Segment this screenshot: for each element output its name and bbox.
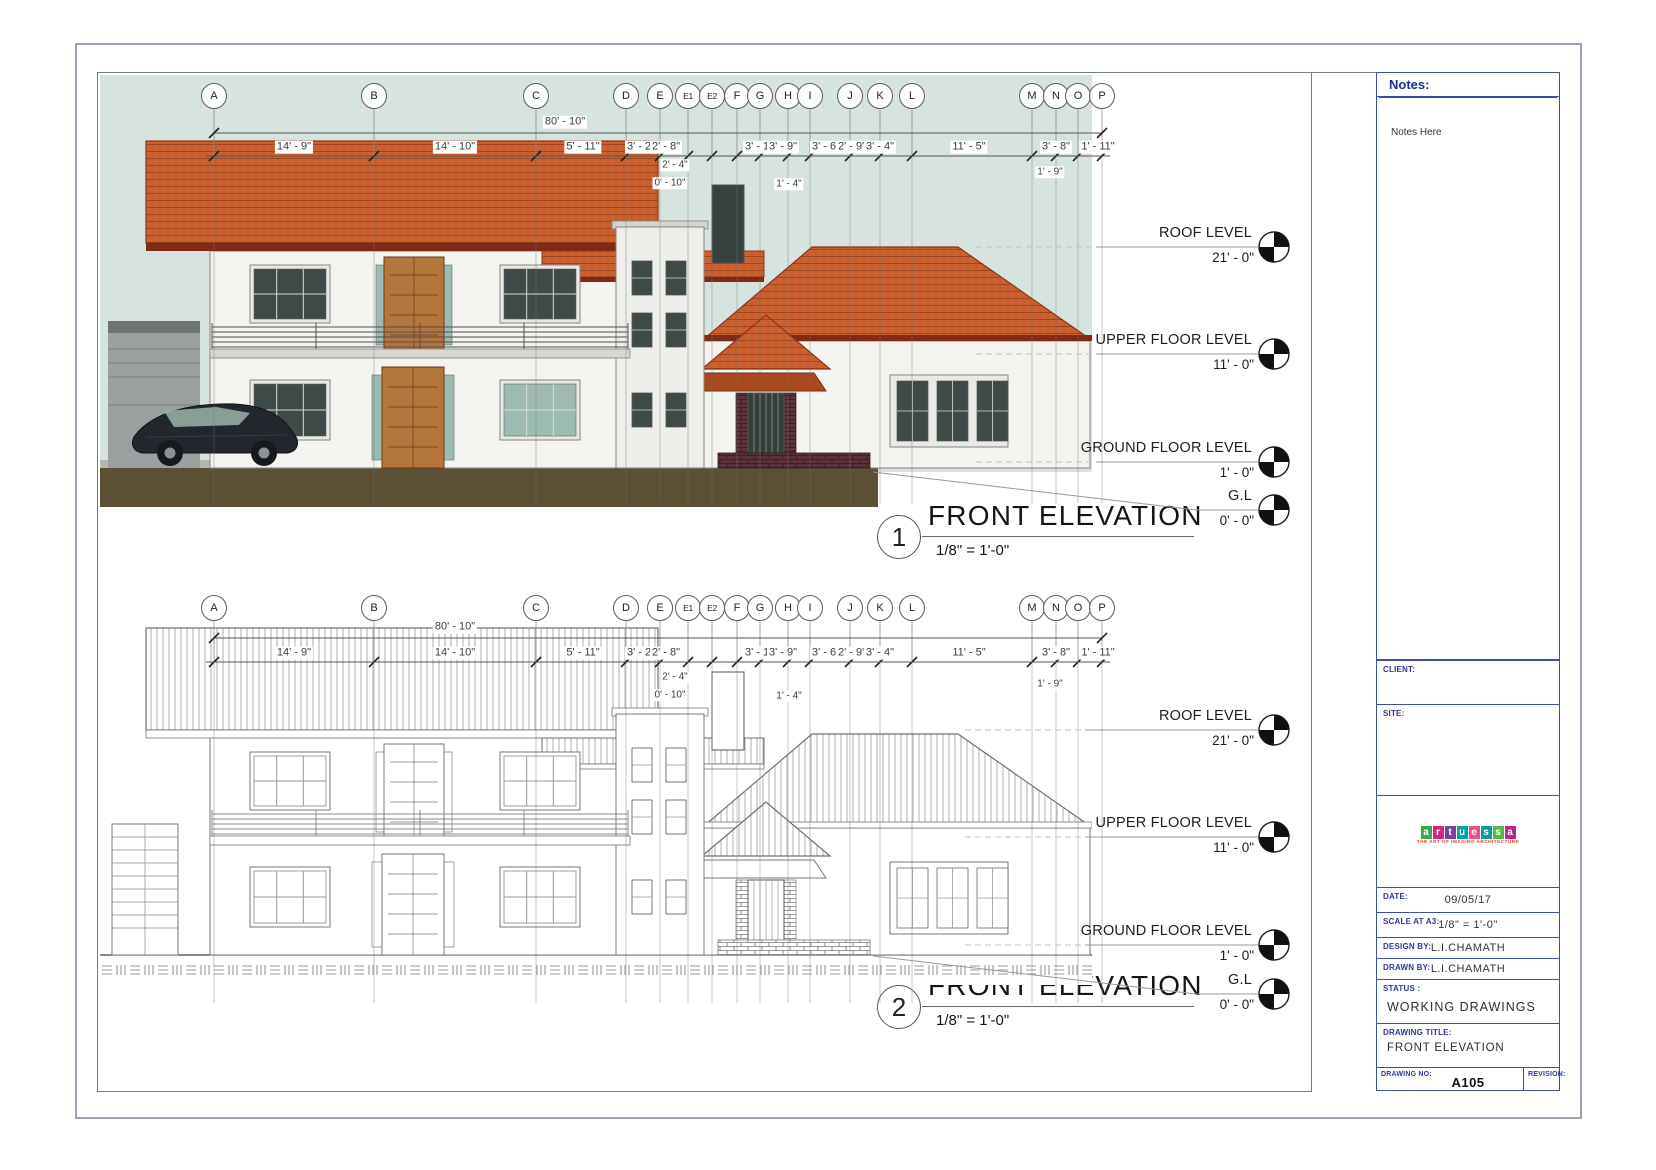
client-label: CLIENT: <box>1383 665 1415 674</box>
client-box: CLIENT: <box>1376 660 1560 705</box>
elevation-2-linework <box>100 562 1092 1002</box>
drawing-no-box: DRAWING NO: A105 REVISION: <box>1376 1067 1560 1091</box>
drawing-title-value: FRONT ELEVATION <box>1387 1042 1559 1054</box>
notes-header: Notes: <box>1377 73 1559 97</box>
logo-letter: t <box>1445 826 1456 839</box>
drawn-by-row: DRAWN BY: L.I.CHAMATH <box>1376 958 1560 980</box>
drawing-title-box: DRAWING TITLE: FRONT ELEVATION <box>1376 1023 1560 1068</box>
revision-label: REVISION: <box>1528 1071 1566 1078</box>
logo-letter: a <box>1421 826 1432 839</box>
logo-box: artuessa THE ART OF IMAGING ARCHITECTURE <box>1376 795 1560 888</box>
view-2-scale: 1/8" = 1'-0" <box>936 1012 1009 1029</box>
drawn-by-label: DRAWN BY: <box>1383 963 1430 972</box>
elevation-1-color-rendering <box>100 75 1092 515</box>
drawing-no-label: DRAWING NO: <box>1381 1071 1432 1078</box>
view-2-title-underline <box>922 1006 1194 1007</box>
logo-word: artuessa <box>1377 826 1559 839</box>
drawing-sheet-page: { "sheet": { "notes": { "header": "Notes… <box>0 0 1656 1170</box>
logo-letter: e <box>1469 826 1480 839</box>
logo-letter: u <box>1457 826 1468 839</box>
view-1-title-underline <box>922 536 1194 537</box>
view-1-number-bubble: 1 <box>877 515 921 559</box>
site-label: SITE: <box>1383 709 1404 718</box>
frame-connector-line <box>1310 72 1376 73</box>
status-value: WORKING DRAWINGS <box>1387 1000 1559 1014</box>
site-box: SITE: <box>1376 704 1560 796</box>
view-1-title: 1 FRONT ELEVATION 1/8" = 1'-0" <box>870 506 1210 570</box>
logo-letter: a <box>1505 826 1516 839</box>
view-1-scale: 1/8" = 1'-0" <box>936 542 1009 559</box>
logo-letter: s <box>1493 826 1504 839</box>
logo-tagline: THE ART OF IMAGING ARCHITECTURE <box>1395 840 1541 845</box>
status-box: STATUS : WORKING DRAWINGS <box>1376 979 1560 1024</box>
logo-letter: s <box>1481 826 1492 839</box>
logo-letter: r <box>1433 826 1444 839</box>
design-by-row: DESIGN BY: L.I.CHAMATH <box>1376 937 1560 959</box>
design-by-label: DESIGN BY: <box>1383 942 1431 951</box>
status-label: STATUS : <box>1383 984 1420 993</box>
scale-label: SCALE AT A3: <box>1383 917 1439 926</box>
arthessa-logo: artuessa THE ART OF IMAGING ARCHITECTURE <box>1377 796 1559 846</box>
date-label: DATE: <box>1383 892 1408 901</box>
revision-box: REVISION: <box>1523 1068 1561 1090</box>
scale-row: SCALE AT A3: 1/8" = 1'-0" <box>1376 912 1560 938</box>
notes-box: Notes: Notes Here <box>1376 72 1560 660</box>
notes-body: Notes Here <box>1391 127 1559 138</box>
date-row: DATE: 09/05/17 <box>1376 887 1560 913</box>
drawing-title-label: DRAWING TITLE: <box>1383 1028 1452 1037</box>
